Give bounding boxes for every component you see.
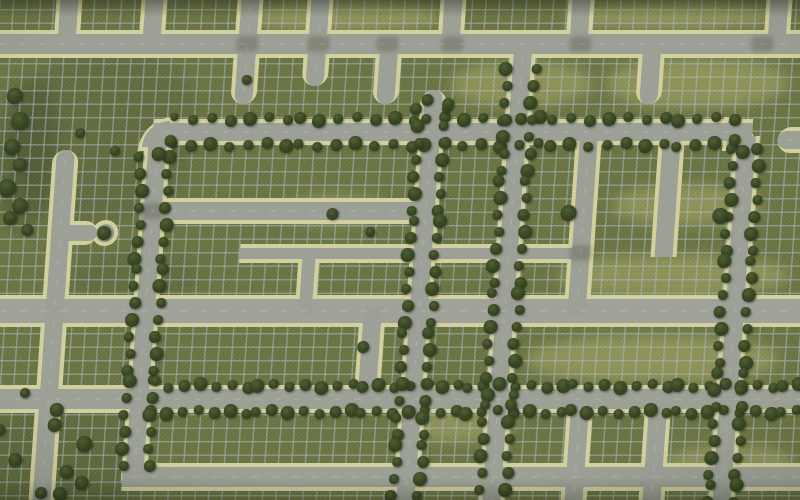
tree <box>547 115 557 124</box>
tree <box>688 383 698 392</box>
tree <box>541 409 551 418</box>
tree <box>392 457 402 466</box>
tree <box>132 264 142 273</box>
tree <box>721 273 731 282</box>
tree <box>134 203 144 212</box>
tree <box>517 244 527 253</box>
tree <box>753 380 763 389</box>
tree <box>711 402 721 411</box>
tree <box>124 332 134 341</box>
tree <box>713 341 723 350</box>
lane-markings <box>788 139 800 141</box>
tree <box>791 377 800 391</box>
tree <box>748 246 758 255</box>
road-vertical <box>639 50 661 104</box>
tree <box>299 406 309 415</box>
tree <box>527 115 537 124</box>
tree <box>736 436 746 445</box>
tree <box>156 298 166 307</box>
tree <box>432 233 442 242</box>
tree <box>52 487 67 500</box>
tree <box>623 112 633 121</box>
tree <box>369 141 379 150</box>
tree <box>159 237 169 246</box>
junction-smudge <box>376 36 399 52</box>
tree <box>170 113 178 121</box>
tree <box>493 210 503 219</box>
lane-markings <box>0 310 800 312</box>
lane-markings <box>163 131 742 133</box>
tree <box>500 149 510 158</box>
tree <box>741 307 751 316</box>
tree <box>429 301 439 310</box>
tree <box>415 138 425 147</box>
tree <box>333 381 343 390</box>
tree <box>738 368 748 377</box>
tree <box>161 169 171 178</box>
tree <box>264 112 274 121</box>
tree <box>211 382 221 391</box>
lane-markings <box>132 476 800 478</box>
tree <box>422 362 432 371</box>
tree <box>333 114 343 123</box>
tree <box>149 366 159 375</box>
tree <box>482 339 492 348</box>
tree <box>224 142 234 151</box>
junction-smudge <box>751 36 774 52</box>
lane-markings <box>150 210 425 212</box>
tree <box>356 408 366 417</box>
tree <box>146 427 156 436</box>
tree <box>395 396 405 405</box>
tree <box>515 305 525 314</box>
tree <box>480 400 490 409</box>
tree <box>507 373 517 382</box>
tree <box>119 461 129 470</box>
tree <box>703 470 713 479</box>
junction-smudge <box>569 245 592 261</box>
junction-smudge <box>441 36 464 52</box>
tree <box>505 434 515 443</box>
road-vertical <box>376 50 398 104</box>
tree <box>503 81 513 90</box>
tree <box>178 407 188 416</box>
junction-smudge <box>307 36 330 52</box>
tree <box>632 381 642 390</box>
tree <box>478 113 488 122</box>
tree <box>122 393 132 402</box>
tree <box>490 278 500 287</box>
city-builder-viewport[interactable] <box>0 0 800 500</box>
tree <box>419 430 429 439</box>
map-scene <box>0 0 800 500</box>
tree <box>188 115 198 124</box>
tree <box>434 172 444 181</box>
tree <box>659 139 669 148</box>
tree <box>397 328 407 337</box>
tree <box>520 176 530 185</box>
tree <box>407 206 417 215</box>
tree <box>514 140 524 149</box>
tree <box>568 379 578 388</box>
tree <box>293 139 303 148</box>
lane-markings <box>0 43 800 45</box>
tree <box>598 406 608 415</box>
tree <box>583 142 593 151</box>
tree <box>412 491 422 500</box>
tree <box>791 405 800 416</box>
tree <box>751 178 761 187</box>
junction-smudge <box>236 36 259 52</box>
junction-smudge <box>569 36 592 52</box>
tree <box>776 407 786 416</box>
tree <box>692 114 702 123</box>
tree <box>405 267 415 276</box>
tree <box>384 490 397 500</box>
tree <box>269 379 279 388</box>
tree <box>477 468 487 477</box>
